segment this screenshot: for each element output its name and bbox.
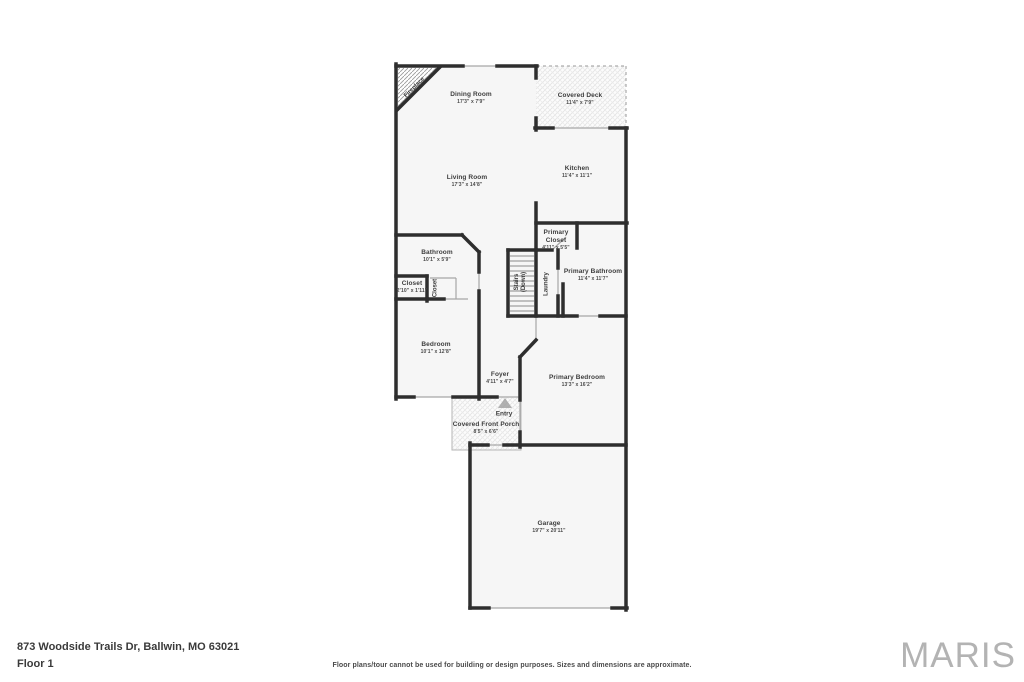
maris-logo: MARIS [900, 636, 1016, 676]
porch-pattern [452, 397, 521, 450]
deck-pattern [536, 66, 626, 128]
property-address: 873 Woodside Trails Dr, Ballwin, MO 6302… [17, 641, 239, 653]
floor-fills [396, 66, 626, 608]
floor-plan-page: Dining Room 17'3" x 7'9" Covered Deck 11… [0, 0, 1024, 682]
floor-plan-drawing [0, 0, 1024, 682]
disclaimer-text: Floor plans/tour cannot be used for buil… [0, 662, 1024, 669]
